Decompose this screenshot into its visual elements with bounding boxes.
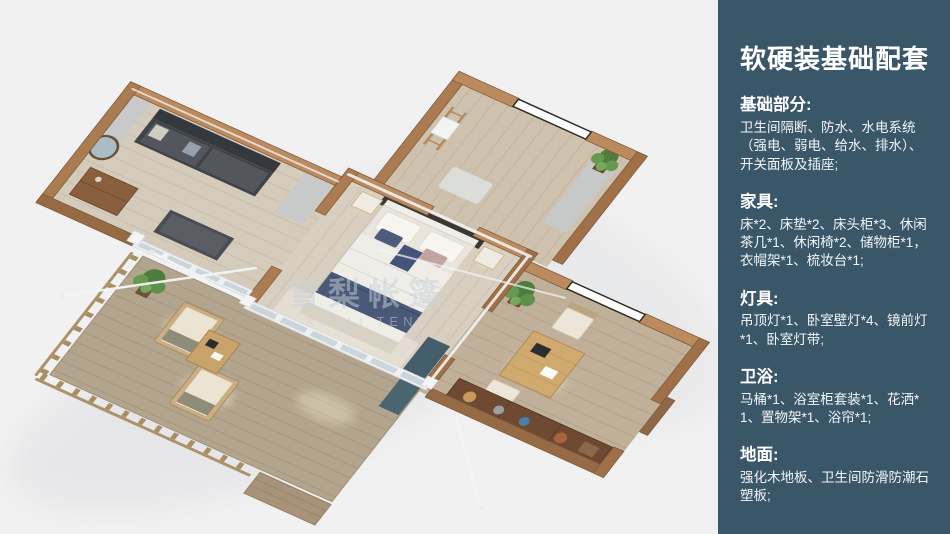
section-furniture-body: 床*2、床垫*2、床头柜*3、休闲茶几*1、休闲椅*2、储物柜*1，衣帽架*1、… xyxy=(740,216,932,271)
watermark-cn: 雪梨帐篷 xyxy=(288,276,448,312)
watermark: 雪梨帐篷 XUELI TENT xyxy=(288,276,448,329)
section-basics-heading: 基础部分: xyxy=(740,95,932,116)
section-bathroom: 卫浴: 马桶*1、浴室柜套装*1、花洒*1、置物架*1、浴帘*1; xyxy=(740,367,932,427)
section-basics-body: 卫生间隔断、防水、水电系统（强电、弱电、给水、排水）、开关面板及插座; xyxy=(740,119,932,174)
section-furniture: 家具: 床*2、床垫*2、床头柜*3、休闲茶几*1、休闲椅*2、储物柜*1，衣帽… xyxy=(740,192,932,271)
section-bathroom-body: 马桶*1、浴室柜套装*1、花洒*1、置物架*1、浴帘*1; xyxy=(740,391,932,428)
watermark-en: XUELI TENT xyxy=(306,314,431,329)
section-flooring-body: 强化木地板、卫生间防滑防潮石塑板; xyxy=(740,469,932,506)
section-bathroom-heading: 卫浴: xyxy=(740,367,932,388)
floorplan-render: 雪梨帐篷 XUELI TENT xyxy=(0,0,718,534)
section-lighting: 灯具: 吊顶灯*1、卧室壁灯*4、镜前灯*1、卧室灯带; xyxy=(740,289,932,349)
section-lighting-body: 吊顶灯*1、卧室壁灯*4、镜前灯*1、卧室灯带; xyxy=(740,312,932,349)
slide: 雪梨帐篷 XUELI TENT 软硬装基础配套 基础部分: 卫生间隔断、防水、水… xyxy=(0,0,950,534)
section-furniture-heading: 家具: xyxy=(740,192,932,213)
floorplan-svg: 雪梨帐篷 XUELI TENT xyxy=(0,0,718,534)
section-flooring-heading: 地面: xyxy=(740,445,932,466)
sidebar-title: 软硬装基础配套 xyxy=(740,44,932,75)
section-basics: 基础部分: 卫生间隔断、防水、水电系统（强电、弱电、给水、排水）、开关面板及插座… xyxy=(740,95,932,174)
section-lighting-heading: 灯具: xyxy=(740,289,932,310)
section-flooring: 地面: 强化木地板、卫生间防滑防潮石塑板; xyxy=(740,445,932,505)
spec-sidebar: 软硬装基础配套 基础部分: 卫生间隔断、防水、水电系统（强电、弱电、给水、排水）… xyxy=(718,0,950,534)
